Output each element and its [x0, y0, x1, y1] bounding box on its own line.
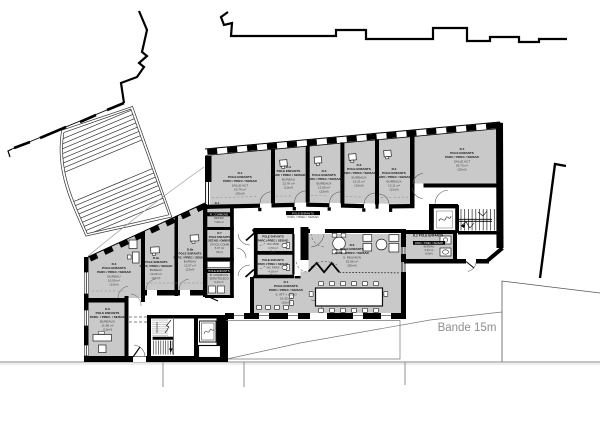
svg-text:B.1: B.1 — [215, 201, 220, 205]
svg-text:PARC / PREC / SEISAD: PARC / PREC / SEISAD — [287, 215, 318, 219]
svg-text:REPRO7.06 m²: REPRO7.06 m² — [214, 216, 225, 224]
svg-text:Bande 15m: Bande 15m — [438, 322, 497, 334]
svg-text:D.2 POLE ENFANTS: D.2 POLE ENFANTS — [413, 234, 443, 238]
svg-text:PARC / PREC / SEISAD: PARC / PREC / SEISAD — [415, 241, 443, 245]
